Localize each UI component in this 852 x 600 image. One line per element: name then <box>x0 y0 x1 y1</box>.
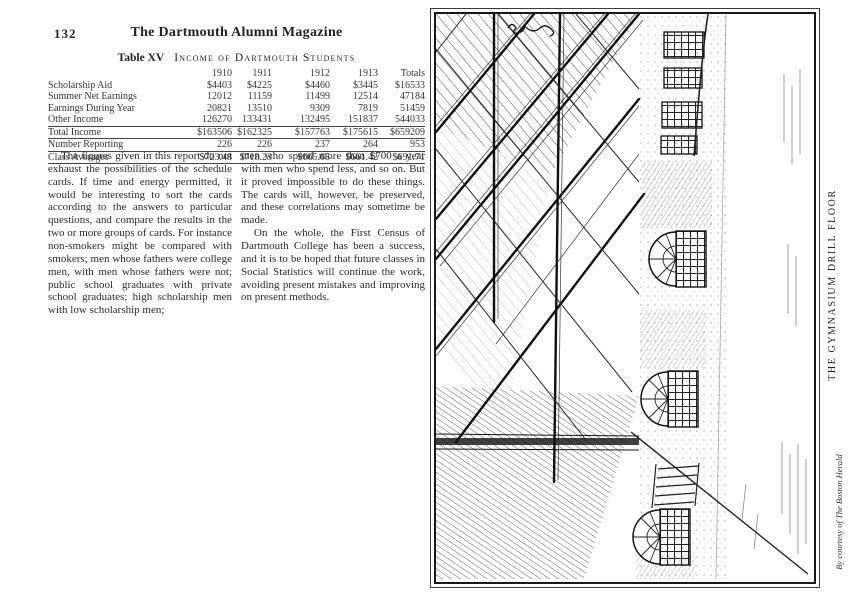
cell-value: 7819 <box>330 103 378 115</box>
cell-value: 51459 <box>378 103 425 115</box>
article-column-right: men who spend more than $700 a year with… <box>241 150 425 304</box>
row-label: Scholarship Aid <box>48 80 176 92</box>
cell-value: 20821 <box>176 103 232 115</box>
column-header: 1912 <box>272 68 330 80</box>
cell-value: $157763 <box>272 126 330 139</box>
cell-value: 9309 <box>272 103 330 115</box>
figure-caption: THE GYMNASIUM DRILL FLOOR <box>827 165 841 405</box>
cell-value: $4403 <box>176 80 232 92</box>
row-label: Total Income <box>48 126 176 139</box>
table-row: Summer Net Earnings 12012 11159 11499 12… <box>48 91 425 103</box>
cell-value: $175615 <box>330 126 378 139</box>
figure-frame <box>430 8 820 588</box>
column-header: 1911 <box>232 68 272 80</box>
column-header: Totals <box>378 68 425 80</box>
cell-value: 151837 <box>330 114 378 126</box>
row-label: Other Income <box>48 114 176 126</box>
cell-value: 11159 <box>232 91 272 103</box>
cell-value: $163506 <box>176 126 232 139</box>
table-header-row: 1910 1911 1912 1913 Totals <box>48 68 425 80</box>
cell-value: $162325 <box>232 126 272 139</box>
cell-value: $3445 <box>330 80 378 92</box>
cell-value: 133431 <box>232 114 272 126</box>
article-paragraph: The figures given in this report do not … <box>48 150 232 317</box>
table-row: Earnings During Year 20821 13510 9309 78… <box>48 103 425 115</box>
column-header <box>48 68 176 80</box>
cell-value: $4460 <box>272 80 330 92</box>
cell-value: 126270 <box>176 114 232 126</box>
cell-value: 132495 <box>272 114 330 126</box>
cell-value: $4225 <box>232 80 272 92</box>
article-paragraph: On the whole, the First Census of Dartmo… <box>241 227 425 304</box>
table-title-text: Income of Dartmouth Students <box>174 52 355 64</box>
cell-value: $16533 <box>378 80 425 92</box>
cell-value: 544033 <box>378 114 425 126</box>
cell-value: 11499 <box>272 91 330 103</box>
column-header: 1910 <box>176 68 232 80</box>
table-title: Table XVIncome of Dartmouth Students <box>48 52 425 64</box>
cell-value: 12514 <box>330 91 378 103</box>
row-label: Summer Net Earnings <box>48 91 176 103</box>
article-paragraph: men who spend more than $700 a year with… <box>241 150 425 227</box>
column-header: 1913 <box>330 68 378 80</box>
row-label: Earnings During Year <box>48 103 176 115</box>
figure-frame-inner <box>434 12 816 584</box>
figure-credit: By courtesy of The Boston Herald <box>834 435 846 589</box>
cell-value: 47184 <box>378 91 425 103</box>
table-row: Total Income $163506 $162325 $157763 $17… <box>48 126 425 139</box>
scanned-magazine-page: 132 The Dartmouth Alumni Magazine Table … <box>0 0 852 600</box>
cell-value: 12012 <box>176 91 232 103</box>
cell-value: 13510 <box>232 103 272 115</box>
table-row: Other Income 126270 133431 132495 151837… <box>48 114 425 126</box>
table-row: Scholarship Aid $4403 $4225 $4460 $3445 … <box>48 80 425 92</box>
table-label: Table XV <box>118 52 165 64</box>
article-column-left: The figures given in this report do not … <box>48 150 232 317</box>
cell-value: $659209 <box>378 126 425 139</box>
gymnasium-illustration <box>436 14 814 583</box>
magazine-title: The Dartmouth Alumni Magazine <box>48 25 425 41</box>
